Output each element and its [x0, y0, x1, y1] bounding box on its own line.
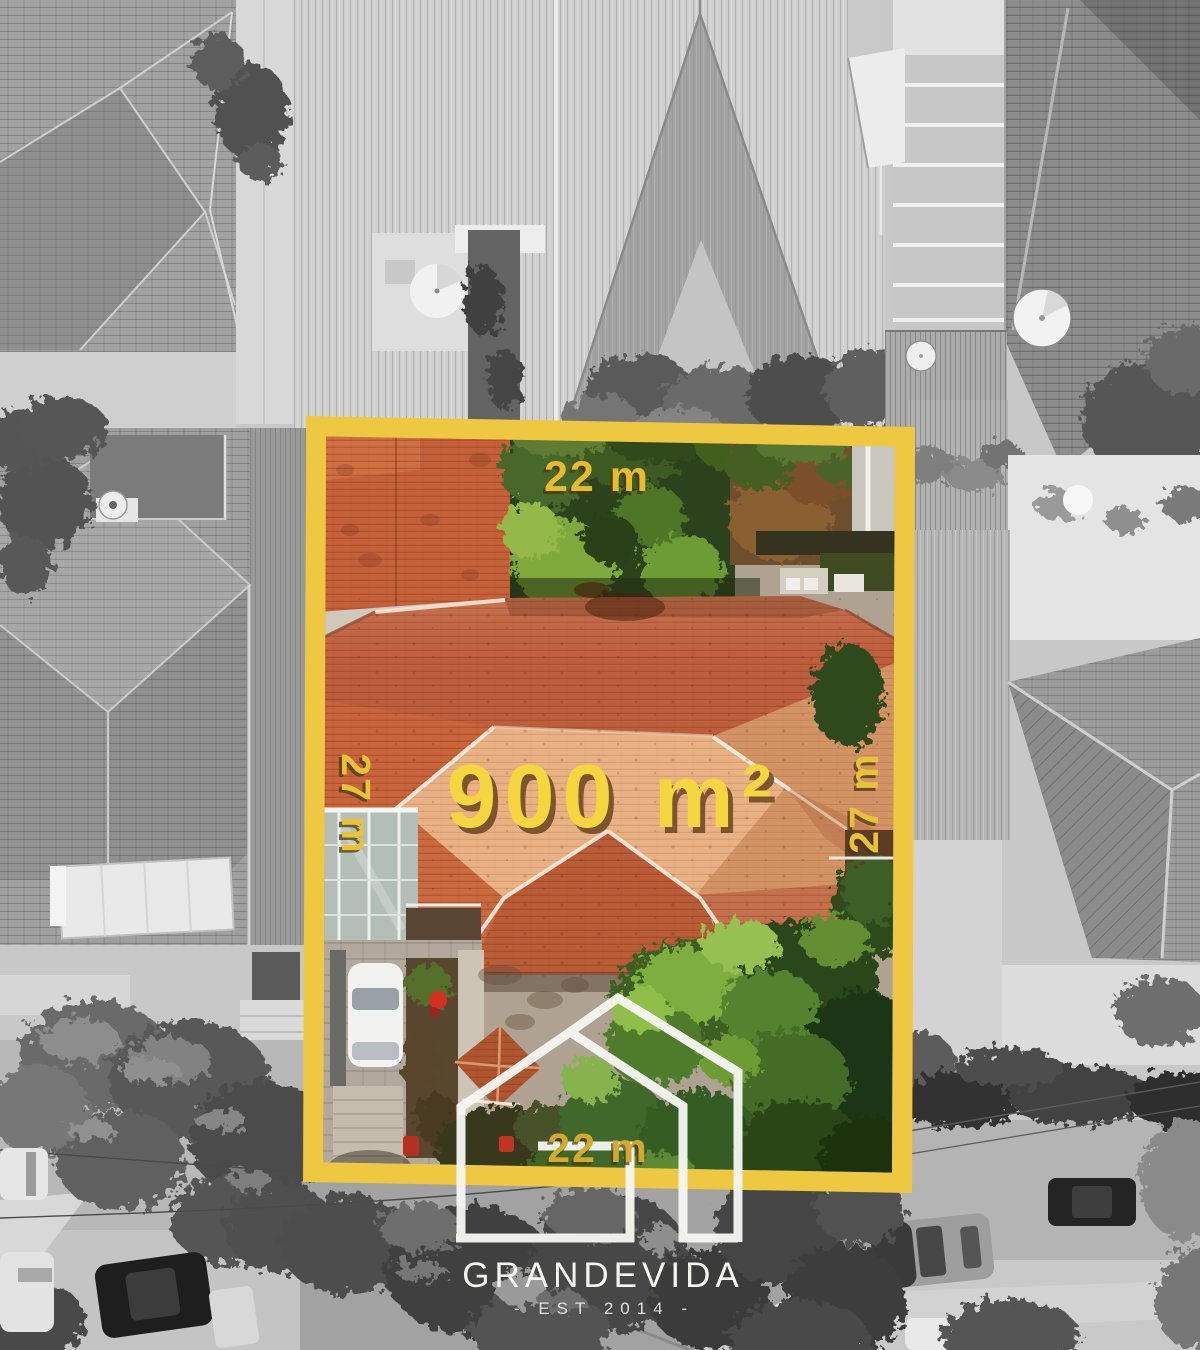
svg-text:- EST 2014 -: - EST 2014 - [514, 1299, 694, 1318]
svg-text:GRANDEVIDA: GRANDEVIDA [462, 1256, 743, 1295]
svg-text:900 m²: 900 m² [446, 747, 779, 847]
svg-text:27 m: 27 m [841, 752, 887, 853]
svg-text:27 m: 27 m [333, 753, 379, 854]
svg-text:22 m: 22 m [544, 453, 650, 501]
svg-text:22 m: 22 m [547, 1125, 648, 1171]
